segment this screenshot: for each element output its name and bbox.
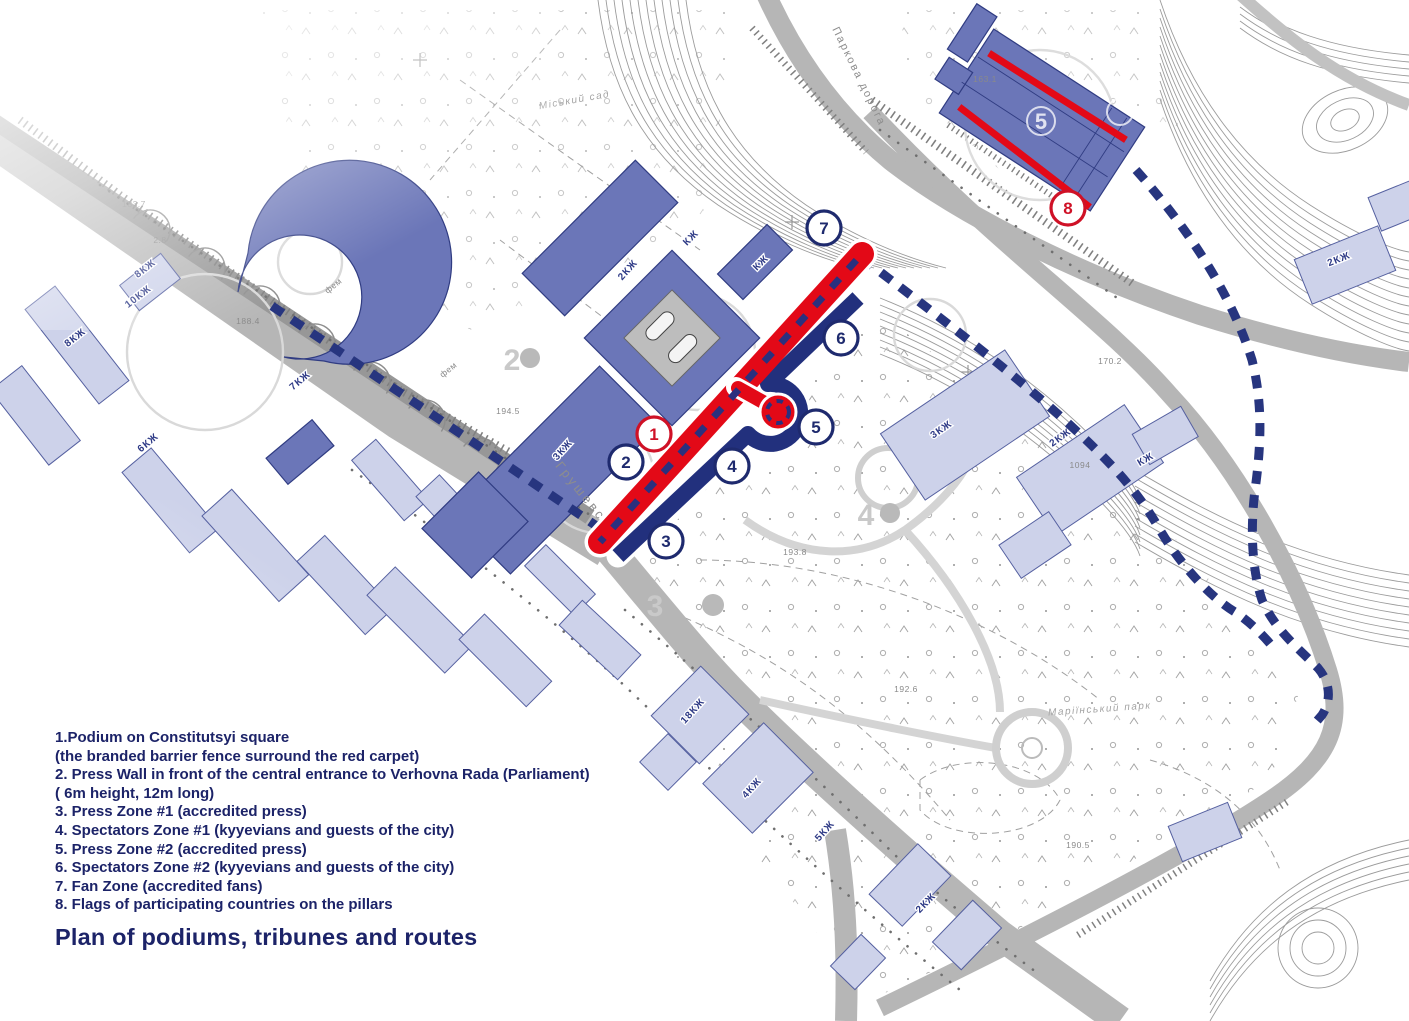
svg-text:4: 4 <box>727 457 737 476</box>
svg-text:2: 2 <box>621 453 630 472</box>
legend-line: 5. Press Zone #2 (accredited press) <box>55 841 590 860</box>
zone-marker-2: 2 <box>609 445 643 479</box>
legend-line: (the branded barrier fence surround the … <box>55 748 590 767</box>
zone-marker-6: 6 <box>824 321 858 355</box>
elevation-label: 170.2 <box>1098 356 1122 366</box>
svg-text:5: 5 <box>811 418 820 437</box>
legend-line: 1.Podium on Constitutsyi square <box>55 729 590 748</box>
svg-text:1: 1 <box>649 425 658 444</box>
svg-text:8: 8 <box>1063 199 1072 218</box>
svg-text:7: 7 <box>819 219 828 238</box>
elevation-label: 192.6 <box>894 684 918 694</box>
zone-marker-5: 5 <box>799 410 833 444</box>
ghost-number: 4 <box>858 499 875 532</box>
plan-poster: Грушевського Паркова дорога Маріїнський … <box>0 0 1409 1021</box>
elevation-label: 163.1 <box>973 74 997 84</box>
elevation-label: 1094 <box>1070 460 1091 470</box>
elevation-label: 190.5 <box>1066 840 1090 850</box>
svg-text:6: 6 <box>836 329 845 348</box>
legend-line: 3. Press Zone #1 (accredited press) <box>55 803 590 822</box>
legend-line: 6. Spectators Zone #2 (kyyevians and gue… <box>55 859 590 878</box>
legend: 1.Podium on Constitutsyi square (the bra… <box>55 729 590 915</box>
zone-marker-4: 4 <box>715 449 749 483</box>
elevation-label: 194.5 <box>496 406 520 416</box>
ghost-number: 2 <box>504 344 521 377</box>
ghost-number: 5 <box>1035 109 1047 134</box>
road-mark: фем <box>438 360 459 380</box>
zone-marker-3: 3 <box>649 524 683 558</box>
legend-line: 4. Spectators Zone #1 (kyyevians and gue… <box>55 822 590 841</box>
legend-line: ( 6m height, 12m long) <box>55 785 590 804</box>
svg-text:3: 3 <box>661 532 670 551</box>
legend-line: 7. Fan Zone (accredited fans) <box>55 878 590 897</box>
zone-marker-7: 7 <box>807 211 841 245</box>
page-title: Plan of podiums, tribunes and routes <box>55 924 477 951</box>
zone-marker-1: 1 <box>637 417 671 451</box>
elevation-label: 193.8 <box>783 547 807 557</box>
legend-line: 8. Flags of participating countries on t… <box>55 896 590 915</box>
zone-marker-8: 8 <box>1051 191 1085 225</box>
legend-line: 2. Press Wall in front of the central en… <box>55 766 590 785</box>
